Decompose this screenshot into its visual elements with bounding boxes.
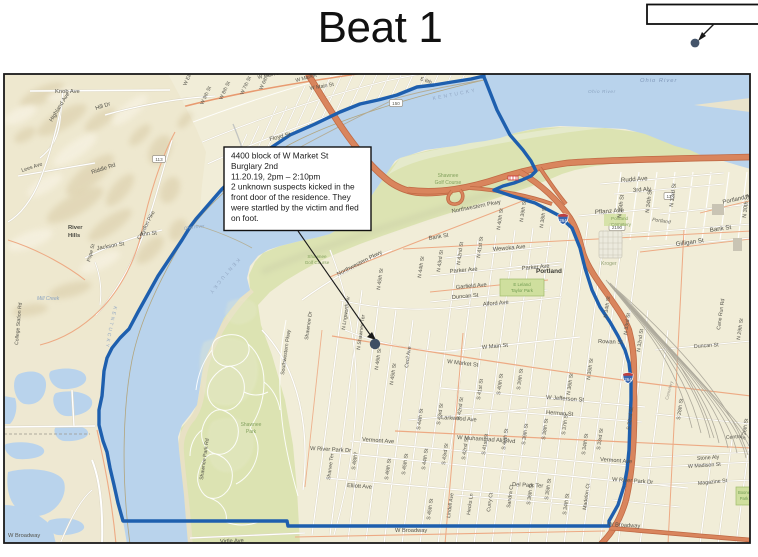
svg-text:Park: Park	[246, 429, 257, 435]
svg-text:were startled by the victim an: were startled by the victim and fled	[230, 203, 359, 213]
svg-text:Taylor Park: Taylor Park	[511, 288, 534, 293]
svg-text:113: 113	[155, 157, 163, 162]
svg-text:Shawnee: Shawnee	[438, 173, 459, 179]
svg-text:River: River	[68, 225, 83, 231]
svg-text:Beat 1: Beat 1	[318, 3, 443, 52]
svg-text:4400 block of W Market St: 4400 block of W Market St	[231, 151, 329, 161]
svg-text:front door of the residence. T: front door of the residence. They	[231, 192, 352, 202]
svg-text:Golf Course: Golf Course	[435, 180, 462, 186]
svg-text:Hills: Hills	[68, 233, 80, 239]
svg-text:Rowan St: Rowan St	[598, 339, 623, 346]
svg-text:on foot.: on foot.	[231, 213, 259, 223]
svg-text:Park: Park	[740, 496, 750, 501]
svg-text:W Broadway: W Broadway	[8, 533, 40, 539]
svg-text:Kroger: Kroger	[601, 261, 617, 267]
svg-text:11.20.19, 2pm – 2:10pm: 11.20.19, 2pm – 2:10pm	[231, 171, 320, 181]
svg-text:Cemetery: Cemetery	[611, 222, 632, 227]
svg-text:W Broadway: W Broadway	[395, 528, 427, 534]
svg-text:Golf Course: Golf Course	[305, 260, 330, 265]
svg-text:Ohio River: Ohio River	[640, 78, 677, 84]
svg-text:264: 264	[624, 377, 632, 382]
svg-text:Mill Creek: Mill Creek	[37, 296, 60, 302]
svg-text:E Leland: E Leland	[513, 282, 531, 287]
svg-text:150: 150	[392, 101, 400, 106]
svg-text:2 unknown suspects kicked in t: 2 unknown suspects kicked in the	[231, 182, 355, 192]
svg-text:Burglary 2nd: Burglary 2nd	[231, 161, 278, 171]
svg-text:Boone: Boone	[738, 490, 751, 495]
svg-text:Shawnee: Shawnee	[241, 422, 262, 428]
svg-text:264: 264	[559, 218, 567, 223]
svg-text:Ohio River: Ohio River	[588, 89, 616, 94]
